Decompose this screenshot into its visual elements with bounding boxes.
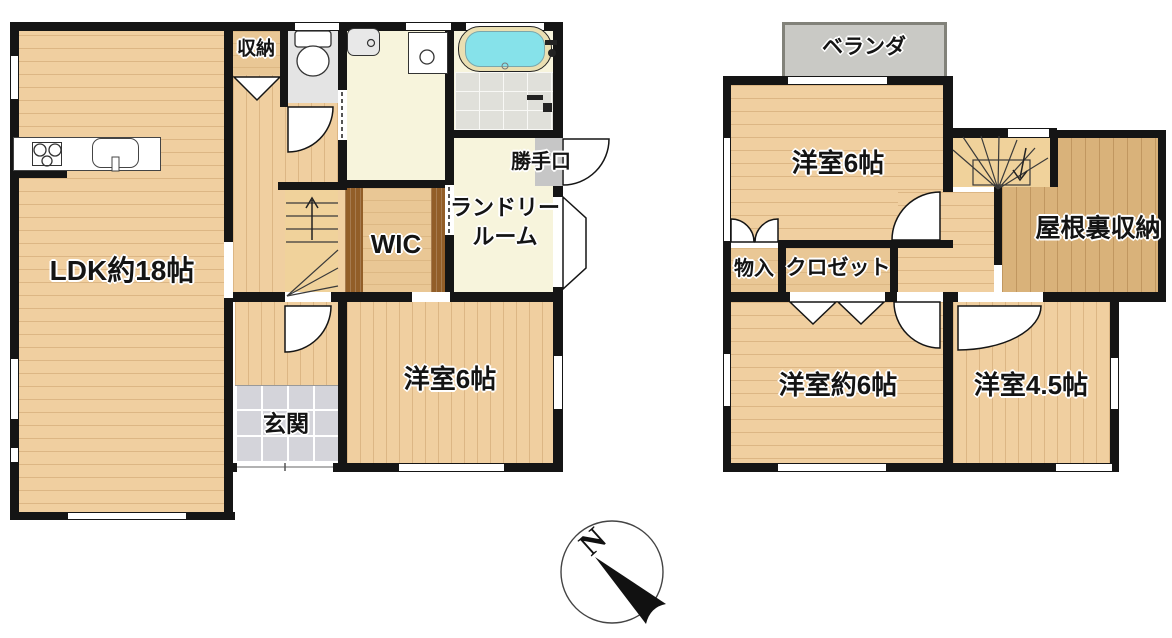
small-storage-door-left [731,219,754,242]
stairs-1f-up-arrow [306,198,318,240]
bay-window [563,197,586,289]
label-entrance: 玄関 [263,412,309,437]
label-small-storage: 物入 [734,259,774,281]
label-attic: 屋根裏収納 [1035,216,1160,243]
stove-burners [34,144,61,166]
bedroom6b-door-arc [894,302,940,348]
kitchen-faucet [112,157,119,171]
toilet-tank [295,31,331,47]
toilet-door-arc [288,107,333,152]
closet-bifold-left [790,302,836,324]
shower-bar [527,95,543,100]
bedroom45-door-arc [958,306,1041,350]
small-storage-door-right [755,219,778,242]
toilet-bowl [297,46,329,76]
label-storage-1f: 収納 [237,40,275,61]
washer-drum [420,50,434,64]
floor-plan: N LDK約18帖 収納 勝手口 ランドリー ルーム WIC 玄関 洋室6帖 ベ… [0,0,1172,638]
shower-head [543,103,552,112]
compass: N [561,520,666,624]
storage-bifold-door [234,77,280,100]
closet-bifold-right [838,302,884,324]
washroom-sink-faucet [368,40,375,47]
bedroom6-2f-door-arc [892,192,940,240]
plan-graphics: N [0,0,1172,638]
label-bedroom6-1f: 洋室6帖 [404,365,496,393]
tub-knob [548,49,556,57]
label-veranda: ベランダ [822,37,906,60]
label-laundry-2: ルーム [472,225,537,249]
label-ldk: LDK約18帖 [50,256,195,286]
label-bedroom45: 洋室4.5帖 [974,371,1088,399]
tub-faucet [545,40,557,45]
label-laundry-1: ランドリー [450,196,560,220]
tub-drain [502,63,508,69]
label-closet: クロゼット [786,258,891,281]
label-back-door: 勝手口 [511,152,571,174]
genkan-hall-door-arc [285,306,331,352]
label-bedroom6b: 洋室約6帖 [779,371,897,399]
stairs-2f-steps [953,136,1048,189]
label-wic: WIC [371,230,422,258]
label-bedroom6-2f: 洋室6帖 [792,149,884,177]
